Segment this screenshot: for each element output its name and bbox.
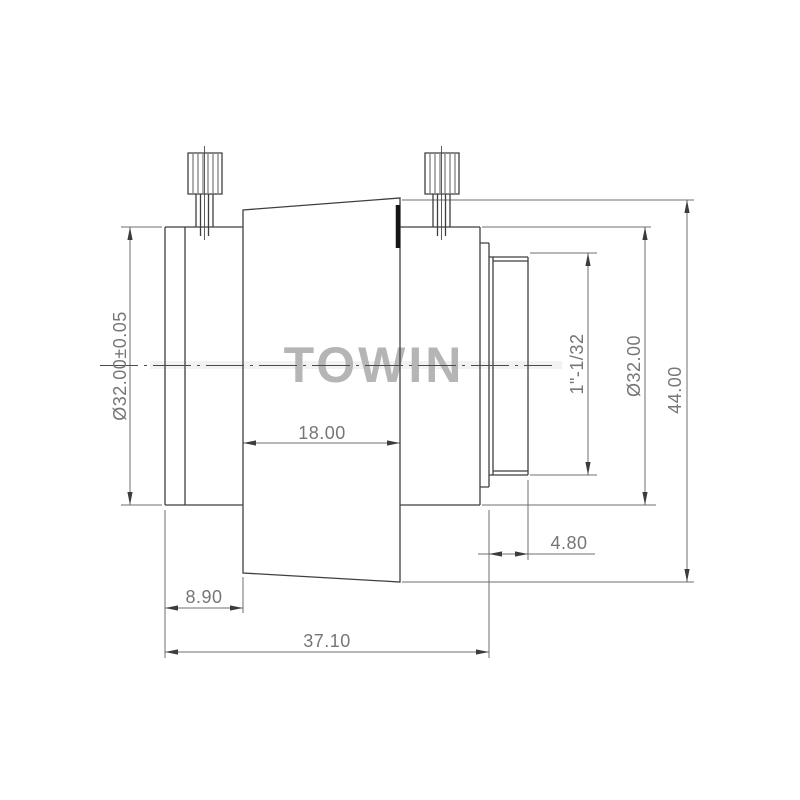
lens-technical-drawing: TOWIN bbox=[0, 0, 800, 800]
dim-max-diameter-label: 44.00 bbox=[665, 366, 685, 414]
dim-thread-spec-label: 1"-1/32 bbox=[567, 334, 587, 395]
dim-front-length-label: 8.90 bbox=[185, 587, 222, 607]
drawing-canvas: TOWIN bbox=[0, 0, 800, 800]
dim-rear-diameter-label: Ø32.00 bbox=[624, 335, 644, 397]
thumb-screw-left bbox=[188, 146, 222, 240]
dim-total-length-label: 37.10 bbox=[303, 631, 351, 651]
knurl-lines bbox=[193, 154, 218, 193]
dim-front-diameter-label: Ø32.00±0.05 bbox=[110, 311, 130, 420]
dim-cone-length-label: 18.00 bbox=[298, 423, 346, 443]
dimension-lines bbox=[130, 200, 687, 652]
knurl-lines bbox=[430, 154, 455, 193]
thumb-screw-right bbox=[425, 146, 459, 240]
dim-thread-length-label: 4.80 bbox=[550, 533, 587, 553]
